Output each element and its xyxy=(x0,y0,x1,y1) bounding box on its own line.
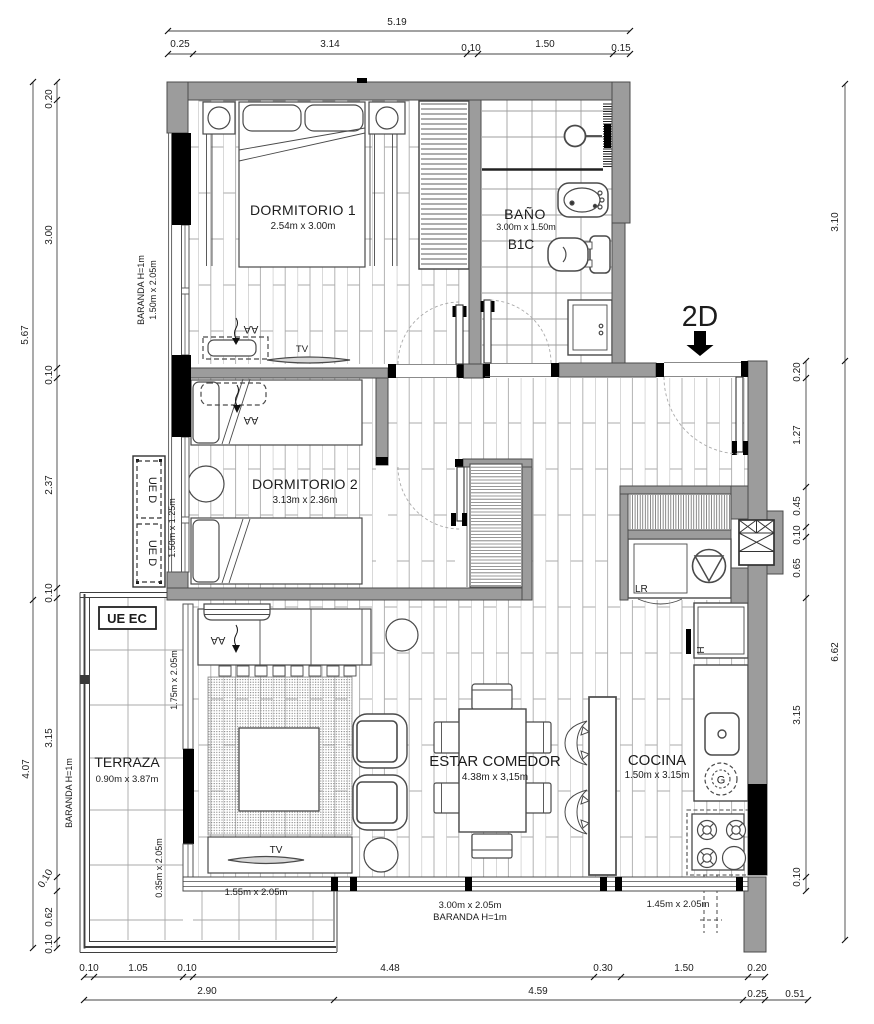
svg-text:0.20: 0.20 xyxy=(44,89,55,109)
svg-text:AA: AA xyxy=(243,323,258,335)
svg-text:0.10: 0.10 xyxy=(79,963,99,974)
svg-text:0.10: 0.10 xyxy=(177,963,197,974)
svg-text:AA: AA xyxy=(210,634,225,646)
svg-text:ESTAR COMEDOR: ESTAR COMEDOR xyxy=(429,753,561,770)
svg-text:4.38m x 3,15m: 4.38m x 3,15m xyxy=(462,772,528,783)
svg-text:0.62: 0.62 xyxy=(44,907,55,927)
svg-text:0.30: 0.30 xyxy=(593,963,613,974)
svg-text:BAÑO: BAÑO xyxy=(504,206,546,222)
svg-text:BARANDA H=1m: BARANDA H=1m xyxy=(64,758,74,828)
svg-text:1.27: 1.27 xyxy=(792,425,803,445)
svg-text:0,10: 0,10 xyxy=(461,43,481,54)
svg-text:2.90: 2.90 xyxy=(197,986,217,997)
svg-text:5.19: 5.19 xyxy=(387,17,407,28)
svg-text:AA: AA xyxy=(243,414,258,426)
svg-text:1.50: 1.50 xyxy=(535,39,555,50)
svg-text:H: H xyxy=(696,646,707,653)
svg-text:0.10: 0.10 xyxy=(792,867,803,887)
svg-text:LR: LR xyxy=(635,584,648,595)
svg-text:TV: TV xyxy=(296,344,309,355)
svg-text:0.20: 0.20 xyxy=(747,963,767,974)
svg-text:TV: TV xyxy=(270,845,283,856)
svg-text:1.50m x 2.05m: 1.50m x 2.05m xyxy=(148,260,158,320)
svg-text:DORMITORIO 2: DORMITORIO 2 xyxy=(252,476,358,492)
svg-text:1.50: 1.50 xyxy=(674,963,694,974)
svg-text:1.45m x 2.05m: 1.45m x 2.05m xyxy=(647,899,710,910)
svg-text:1.05: 1.05 xyxy=(128,963,148,974)
svg-text:4.07: 4.07 xyxy=(21,759,32,779)
svg-text:0.65: 0.65 xyxy=(792,558,803,578)
svg-text:G: G xyxy=(717,775,726,787)
svg-text:3.10: 3.10 xyxy=(830,212,841,232)
svg-text:1.50m x 3.15m: 1.50m x 3.15m xyxy=(625,770,690,781)
svg-text:0.90m x 3.87m: 0.90m x 3.87m xyxy=(96,774,159,785)
svg-text:2D: 2D xyxy=(682,301,718,333)
svg-text:0.45: 0.45 xyxy=(792,496,803,516)
svg-text:0.15: 0.15 xyxy=(611,43,631,54)
svg-text:4.48: 4.48 xyxy=(380,963,400,974)
svg-text:2.54m x 3.00m: 2.54m x 3.00m xyxy=(271,221,336,232)
svg-text:UE D: UE D xyxy=(146,477,158,503)
svg-text:5.67: 5.67 xyxy=(20,325,31,345)
svg-text:0.25: 0.25 xyxy=(747,989,767,1000)
svg-text:0.35m x 2.05m: 0.35m x 2.05m xyxy=(154,838,164,898)
svg-text:0.10: 0.10 xyxy=(44,365,55,385)
svg-text:0.25: 0.25 xyxy=(170,39,190,50)
svg-text:0.10: 0.10 xyxy=(44,583,55,603)
svg-text:6.62: 6.62 xyxy=(830,642,841,662)
svg-text:UE D: UE D xyxy=(146,540,158,566)
svg-text:TERRAZA: TERRAZA xyxy=(94,754,160,770)
svg-text:3.00: 3.00 xyxy=(44,225,55,245)
svg-text:1.75m x 2.05m: 1.75m x 2.05m xyxy=(169,650,179,710)
svg-text:3.00m x 1.50m: 3.00m x 1.50m xyxy=(496,222,556,232)
svg-text:3.15: 3.15 xyxy=(44,728,55,748)
svg-text:DORMITORIO 1: DORMITORIO 1 xyxy=(250,202,356,218)
svg-text:COCINA: COCINA xyxy=(628,752,686,769)
svg-text:3.13m x 2.36m: 3.13m x 2.36m xyxy=(273,495,338,506)
svg-text:0.10: 0.10 xyxy=(44,934,55,954)
svg-text:UE EC: UE EC xyxy=(107,611,147,626)
svg-text:0.10: 0.10 xyxy=(792,525,803,545)
svg-text:3.00m x 2.05m: 3.00m x 2.05m xyxy=(439,900,502,911)
svg-text:2.37: 2.37 xyxy=(44,475,55,495)
svg-text:BARANDA H=1m: BARANDA H=1m xyxy=(136,255,146,325)
svg-text:B1C: B1C xyxy=(508,237,535,252)
svg-text:1.55m x 2.05m: 1.55m x 2.05m xyxy=(225,887,288,898)
svg-text:1.50m x 1.25m: 1.50m x 1.25m xyxy=(167,498,177,558)
svg-text:BARANDA H=1m: BARANDA H=1m xyxy=(433,912,507,923)
svg-text:4.59: 4.59 xyxy=(528,986,548,997)
svg-text:0.20: 0.20 xyxy=(792,362,803,382)
svg-text:0.51: 0.51 xyxy=(785,989,805,1000)
svg-text:3.15: 3.15 xyxy=(792,705,803,725)
svg-text:3.14: 3.14 xyxy=(320,39,340,50)
